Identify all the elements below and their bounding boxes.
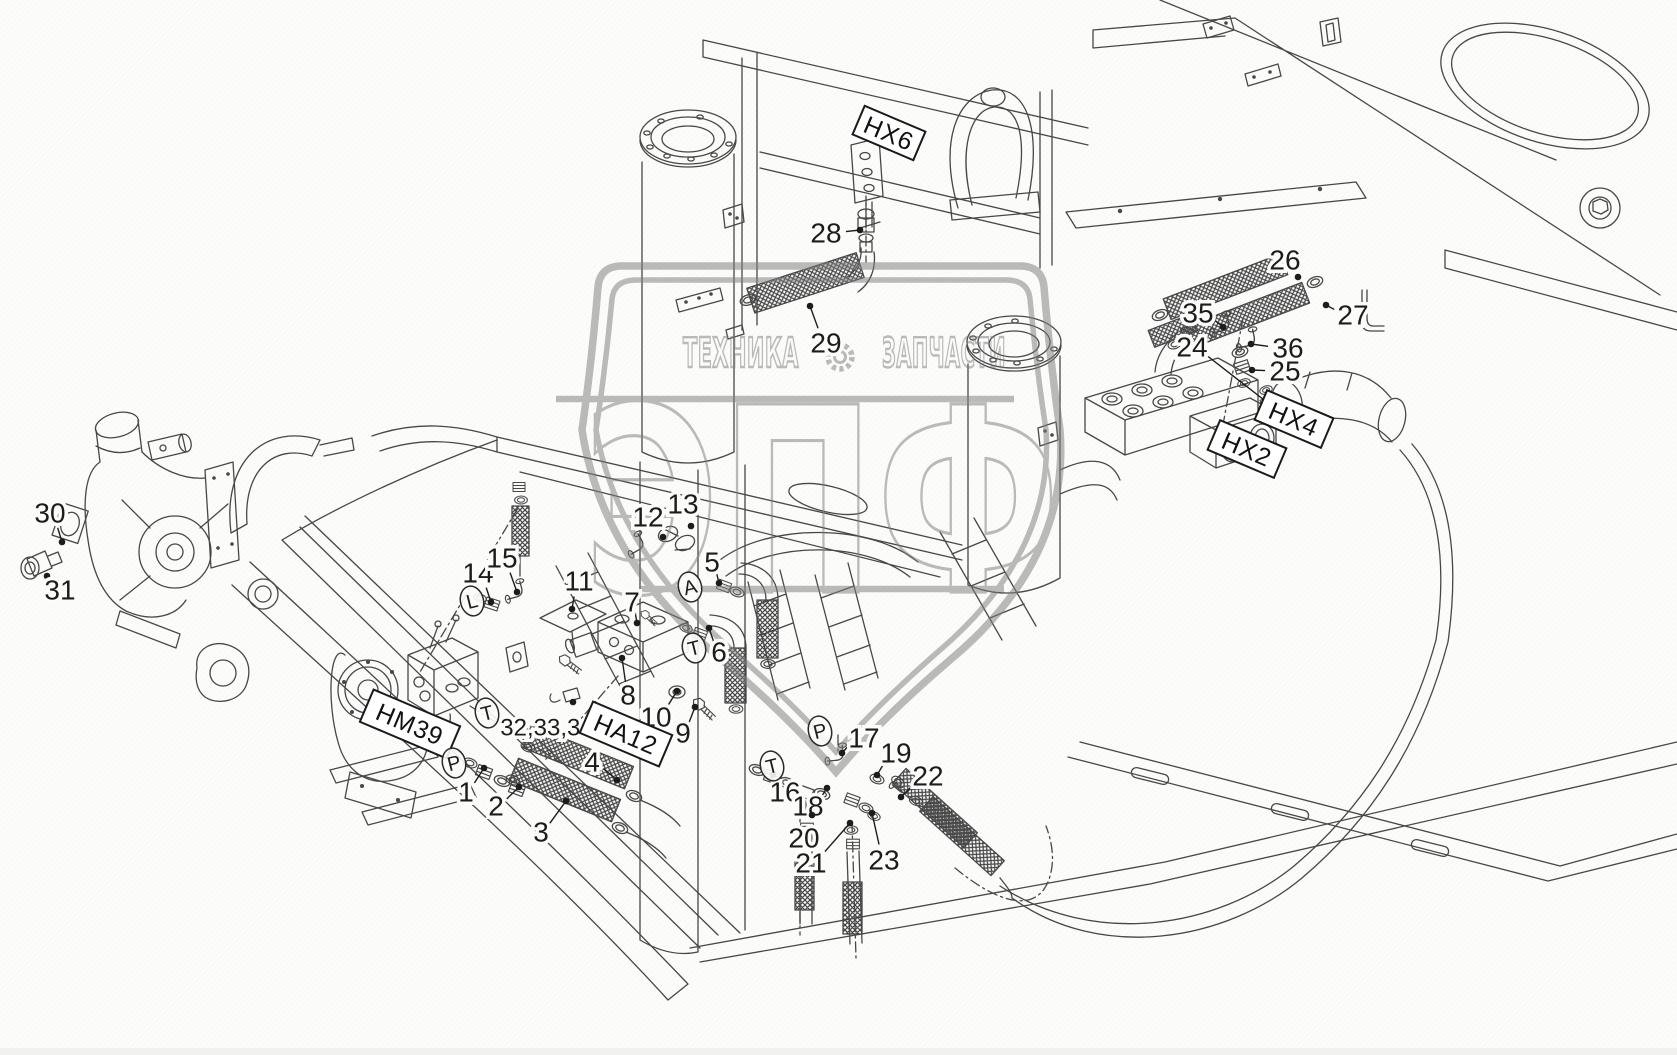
callout-13: 13 [667, 489, 698, 530]
callout-number: 1 [458, 777, 474, 808]
part-code-HM39: HM39 [360, 690, 460, 759]
callout-8: 8 [619, 655, 636, 711]
callout-number: 29 [810, 328, 841, 359]
callout-26: 26 [1269, 245, 1301, 281]
callout-27: 27 [1323, 300, 1369, 331]
callout-number: 22 [912, 761, 943, 792]
callout-12: 12 [632, 502, 666, 541]
part-code-HX6: HX6 [853, 106, 926, 160]
callout-number: 5 [704, 547, 720, 578]
callout-6: 6 [706, 625, 727, 668]
callout-number: 2 [488, 791, 504, 822]
callout-number: 21 [795, 848, 826, 879]
page-bottom-edge [0, 1048, 1677, 1055]
callout-number: 12 [632, 502, 663, 533]
callout-28: 28 [810, 218, 863, 249]
callout-number: 17 [848, 723, 879, 754]
callout-number: 24 [1176, 332, 1207, 363]
callout-31: 31 [44, 573, 76, 606]
port-label-L: L [457, 584, 487, 619]
labels-overlay: 1234567891011121314151617181920212223242… [0, 0, 1677, 1055]
callout-2: 2 [488, 784, 522, 822]
callout-number: 8 [620, 680, 636, 711]
callout-7: 7 [624, 587, 640, 627]
callout-36: 36 [1248, 333, 1304, 364]
callout-11: 11 [564, 566, 593, 613]
callout-24: 24 [1176, 332, 1271, 407]
port-label-P: P [805, 714, 835, 749]
port-label-T: T [679, 631, 709, 666]
callout-23: 23 [868, 810, 899, 876]
callout-number: 15 [486, 543, 517, 574]
callout-4: 4 [584, 747, 620, 784]
callout-number: 13 [667, 489, 698, 520]
callout-29: 29 [807, 303, 842, 359]
port-label-A: A [675, 570, 705, 605]
callout-number: 32,33,34 [500, 715, 593, 742]
callout-number: 3 [533, 817, 549, 848]
callout-number: 7 [624, 587, 640, 618]
callout-number: 26 [1269, 245, 1300, 276]
callout-17: 17 [839, 723, 880, 757]
callout-32,33,34: 32,33,34 [500, 699, 593, 742]
callout-3: 3 [533, 798, 569, 848]
callout-number: 23 [868, 845, 899, 876]
callout-number: 11 [564, 566, 593, 597]
callout-number: 6 [711, 637, 727, 668]
callout-number: 19 [880, 738, 911, 769]
callout-number: 28 [810, 218, 841, 249]
callout-number: 9 [675, 718, 691, 749]
callout-5: 5 [704, 547, 722, 587]
callout-number: 4 [584, 747, 600, 778]
callout-number: 31 [44, 575, 75, 606]
callout-9: 9 [675, 704, 698, 749]
callout-35: 35 [1182, 298, 1226, 331]
parts-diagram-page: ТЕХНИКА ЗАПЧАСТИ ЭПФ 1234567891011121314… [0, 0, 1677, 1055]
callout-number: 35 [1182, 298, 1213, 329]
callout-30: 30 [34, 498, 65, 546]
callout-number: 27 [1337, 300, 1368, 331]
callout-number: 30 [34, 498, 65, 529]
port-label-T: T [472, 696, 502, 731]
callout-number: 18 [792, 791, 823, 822]
callout-number: 36 [1272, 333, 1303, 364]
